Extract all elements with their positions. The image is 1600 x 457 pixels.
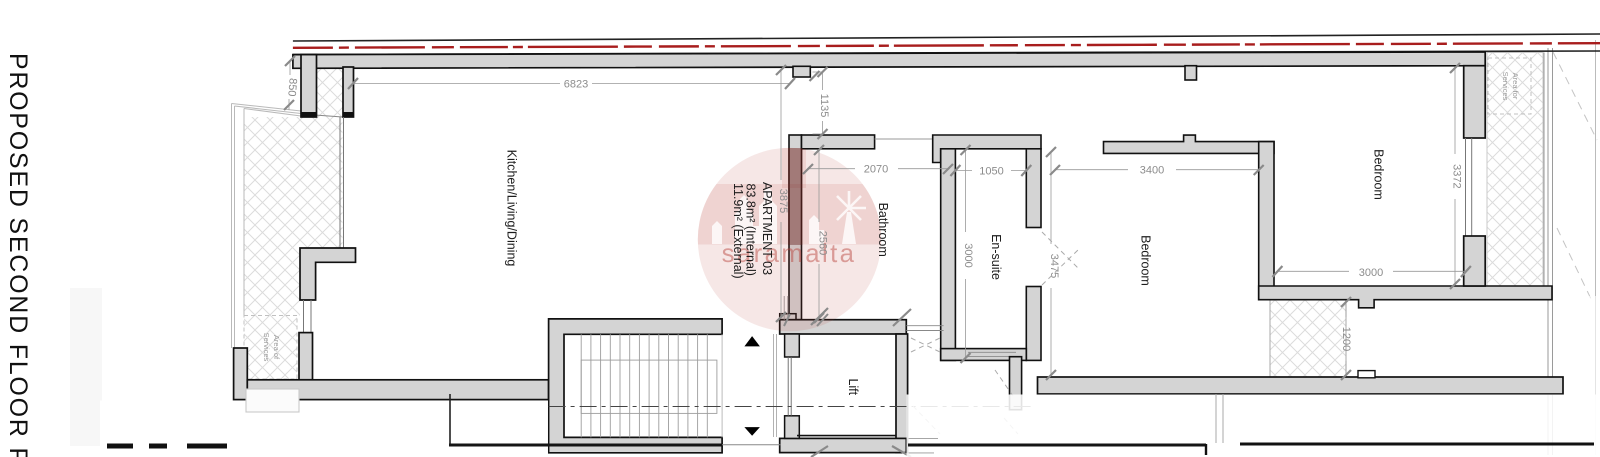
svg-text:1050: 1050 (979, 166, 1003, 178)
svg-text:Lift: Lift (846, 378, 860, 395)
svg-text:Kitchen/Living/Dining: Kitchen/Living/Dining (505, 150, 519, 267)
svg-text:Area for: Area for (1511, 73, 1520, 100)
svg-text:3372: 3372 (1451, 164, 1463, 188)
svg-text:1200: 1200 (1340, 327, 1352, 351)
svg-text:3475: 3475 (1048, 254, 1060, 278)
svg-text:1135: 1135 (818, 94, 830, 118)
svg-text:6823: 6823 (564, 79, 588, 91)
svg-text:Services: Services (1501, 72, 1510, 101)
svg-text:3000: 3000 (1359, 267, 1383, 279)
svg-text:3400: 3400 (1140, 165, 1164, 177)
svg-text:Bedroom: Bedroom (1372, 149, 1386, 200)
svg-text:3000: 3000 (962, 243, 974, 267)
svg-text:Services: Services (262, 333, 271, 362)
svg-text:2070: 2070 (864, 164, 888, 176)
svg-text:Bathroom: Bathroom (876, 203, 890, 257)
svg-text:Area of: Area of (272, 335, 281, 360)
svg-text:11.9m² (External): 11.9m² (External) (731, 183, 745, 279)
svg-text:PROPOSED SECOND FLOOR PLAN: PROPOSED SECOND FLOOR PLAN (4, 53, 31, 457)
svg-text:2560: 2560 (817, 231, 829, 255)
svg-text:3875: 3875 (777, 189, 789, 213)
svg-text:Bedroom: Bedroom (1139, 235, 1153, 286)
svg-text:APARTMENT 03: APARTMENT 03 (760, 182, 774, 275)
svg-text:En-suite: En-suite (989, 234, 1003, 280)
svg-text:850: 850 (285, 78, 299, 97)
